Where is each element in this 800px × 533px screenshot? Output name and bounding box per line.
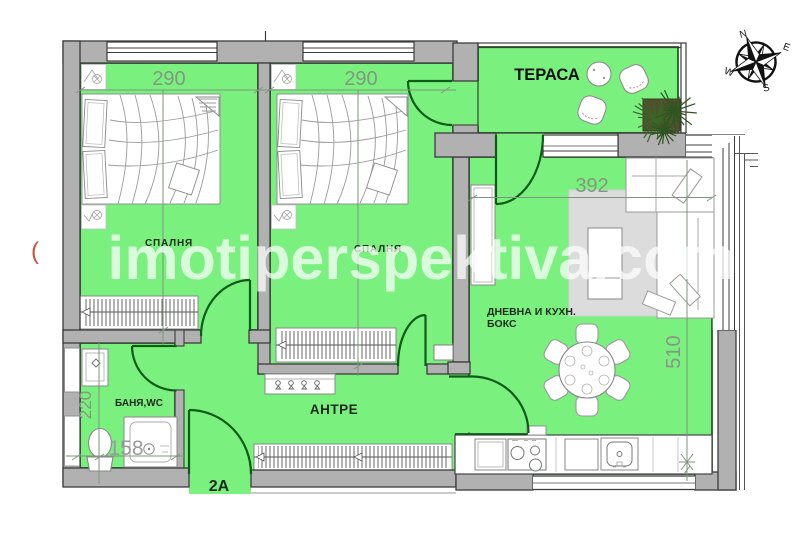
svg-text:ТЕРАСА: ТЕРАСА [514, 66, 580, 84]
svg-text:290: 290 [344, 68, 377, 90]
svg-text:2А: 2А [209, 478, 230, 495]
svg-text:ДНЕВНА И КУХН.: ДНЕВНА И КУХН. [487, 306, 576, 318]
svg-text:392: 392 [575, 175, 608, 197]
svg-text:БОКС: БОКС [487, 318, 517, 330]
svg-text:510: 510 [663, 335, 685, 368]
svg-text:290: 290 [152, 68, 185, 90]
svg-text:(: ( [31, 238, 39, 265]
svg-text:220: 220 [76, 391, 95, 419]
svg-text:БАНЯ,WC: БАНЯ,WC [115, 398, 163, 409]
svg-text:АНТРЕ: АНТРЕ [310, 402, 358, 417]
svg-text:158: 158 [108, 437, 143, 460]
svg-text:imotiperspektiva.com: imotiperspektiva.com [107, 224, 734, 292]
